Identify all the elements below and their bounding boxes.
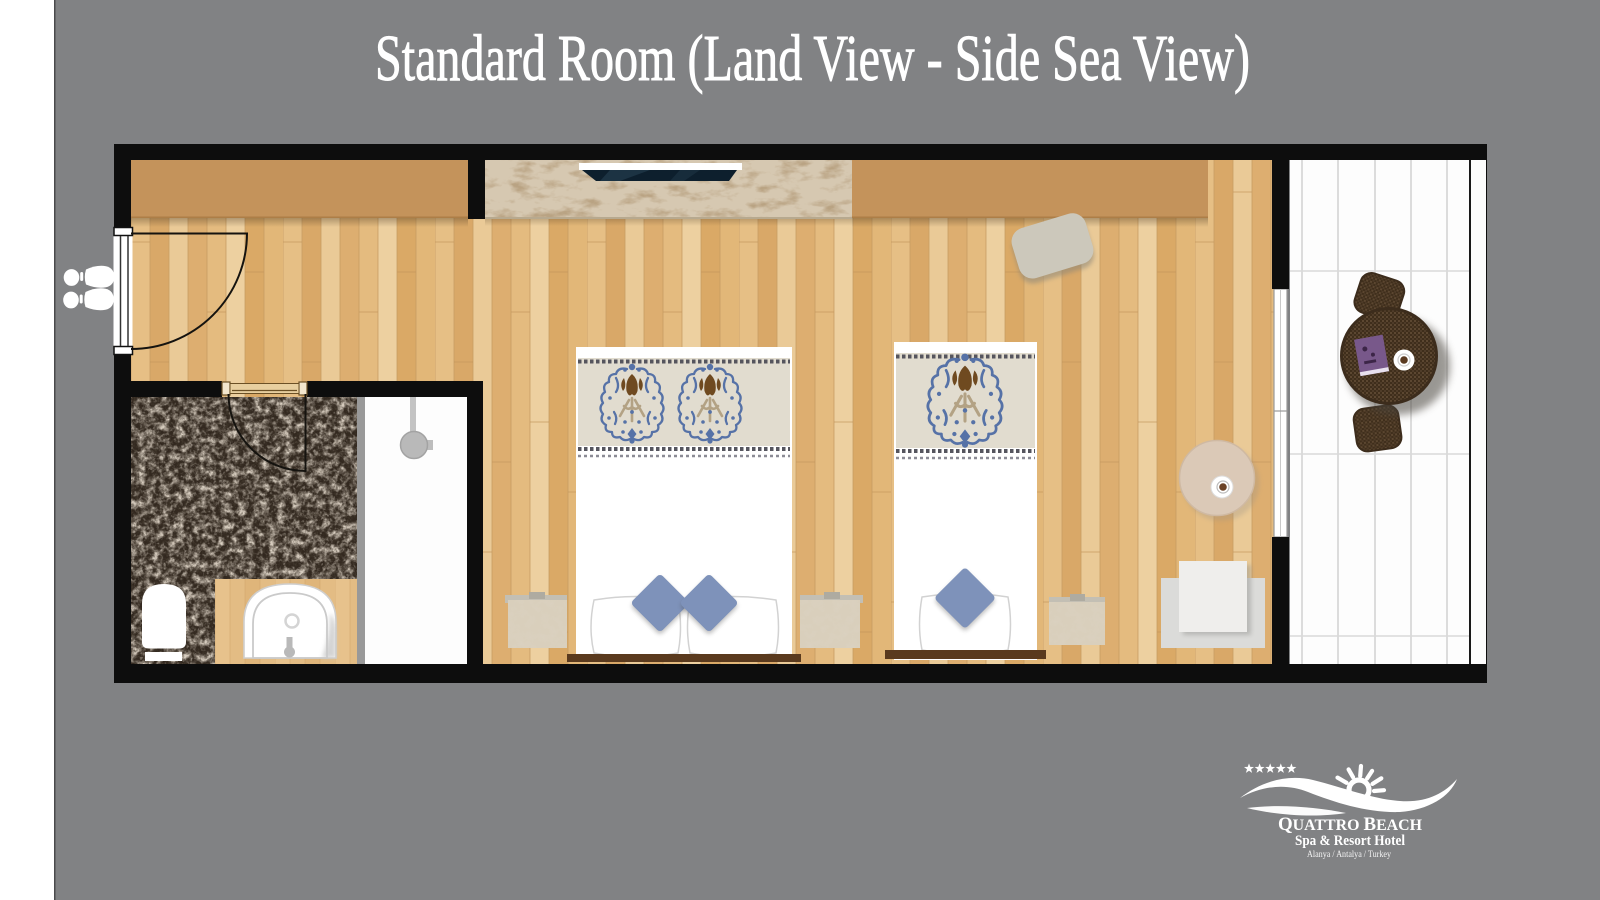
svg-text:QUATTRO BEACH: QUATTRO BEACH <box>1278 814 1423 835</box>
svg-text:Standard Room (Land View - Sid: Standard Room (Land View - Side Sea View… <box>375 22 1250 95</box>
svg-text:Spa & Resort Hotel: Spa & Resort Hotel <box>1295 833 1405 849</box>
svg-text:Alanya / Antalya / Turkey: Alanya / Antalya / Turkey <box>1307 849 1391 859</box>
